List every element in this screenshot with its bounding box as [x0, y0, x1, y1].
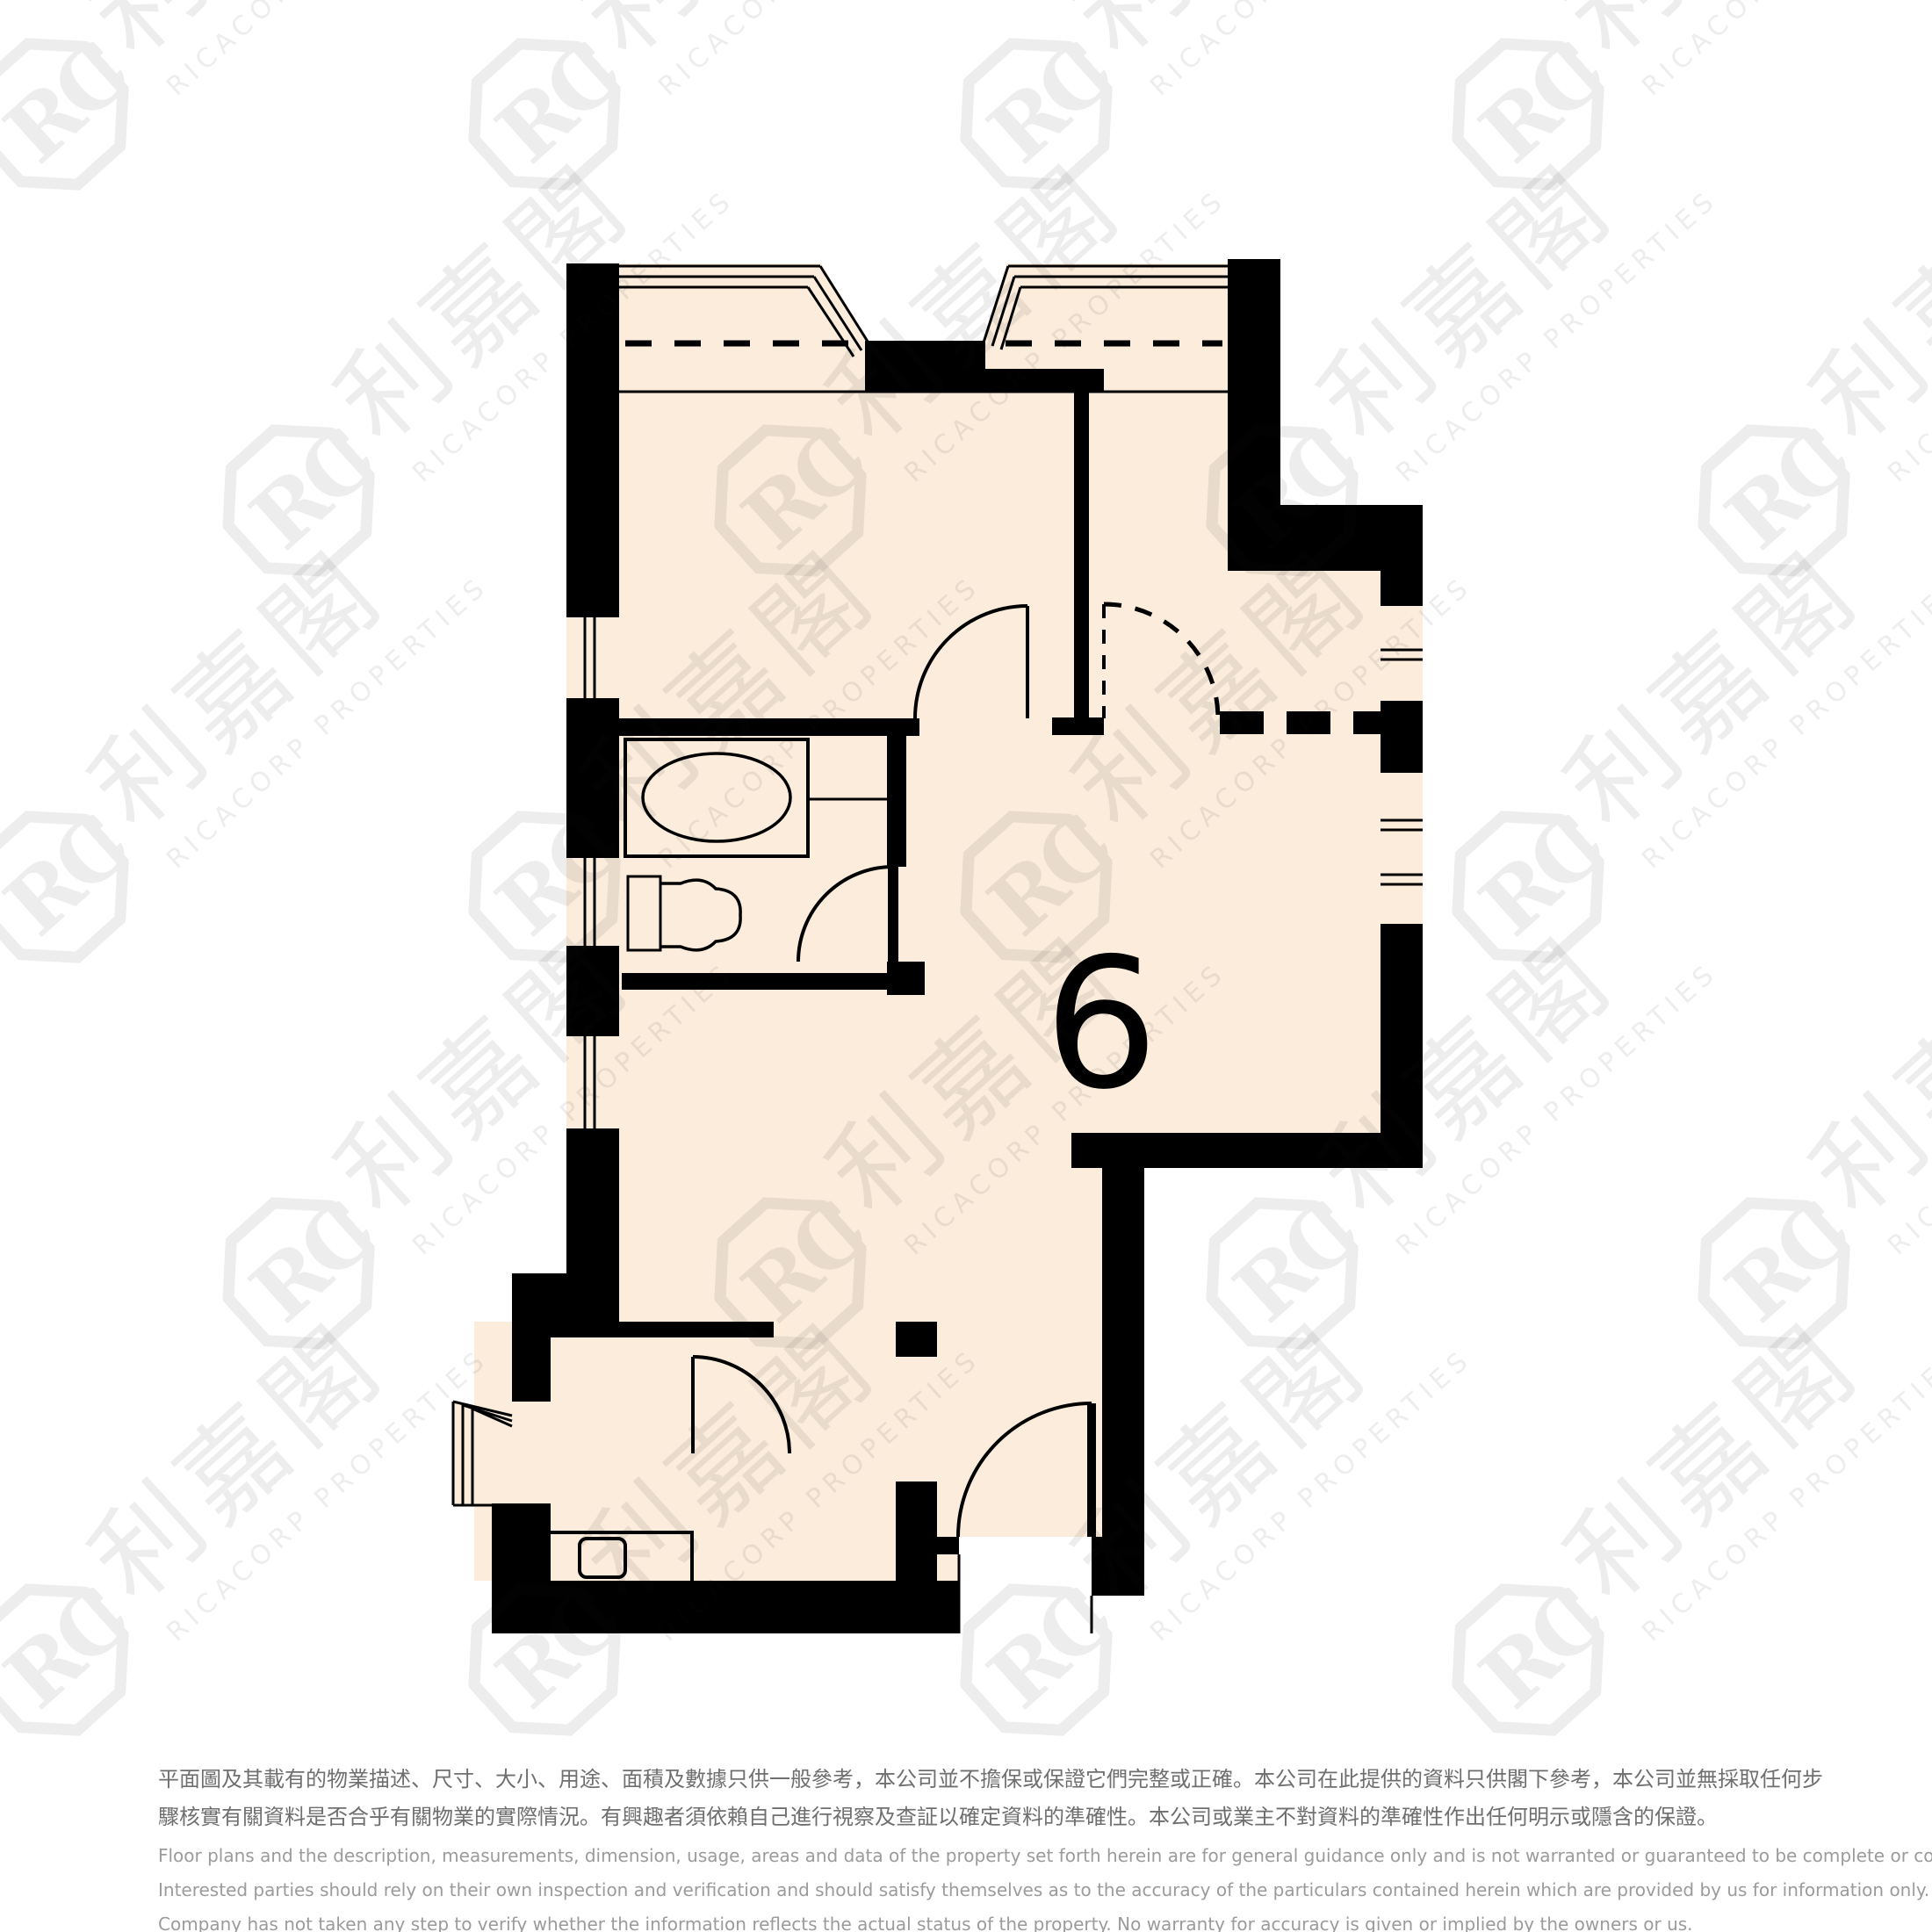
disclaimer-block: 平面圖及其載有的物業描述、尺寸、大小、用途、面積及數據只供一般參考，本公司並不擔… [158, 1761, 1932, 1932]
floor-plan-page: 6 RC利嘉閣RICACORP PROPERTIESRC利嘉閣RICACORP … [0, 0, 1932, 1932]
floor-plan-drawing: 6 [0, 0, 1932, 1932]
disclaimer-en-line3: Company has not taken any step to verify… [158, 1910, 1932, 1932]
disclaimer-zh-line2: 驟核實有關資料是否合乎有關物業的實際情況。有興趣者須依賴自己進行視察及查証以確定… [158, 1799, 1932, 1836]
unit-number-label: 6 [1044, 920, 1158, 1129]
disclaimer-zh-line1: 平面圖及其載有的物業描述、尺寸、大小、用途、面積及數據只供一般參考，本公司並不擔… [158, 1761, 1932, 1799]
entrance-doorway-gap [959, 1537, 1092, 1633]
kitchen-window [453, 1402, 512, 1505]
left-wall-windows [566, 617, 619, 1128]
disclaimer-en-line1: Floor plans and the description, measure… [158, 1842, 1932, 1871]
disclaimer-en-line2: Interested parties should rely on their … [158, 1876, 1932, 1905]
